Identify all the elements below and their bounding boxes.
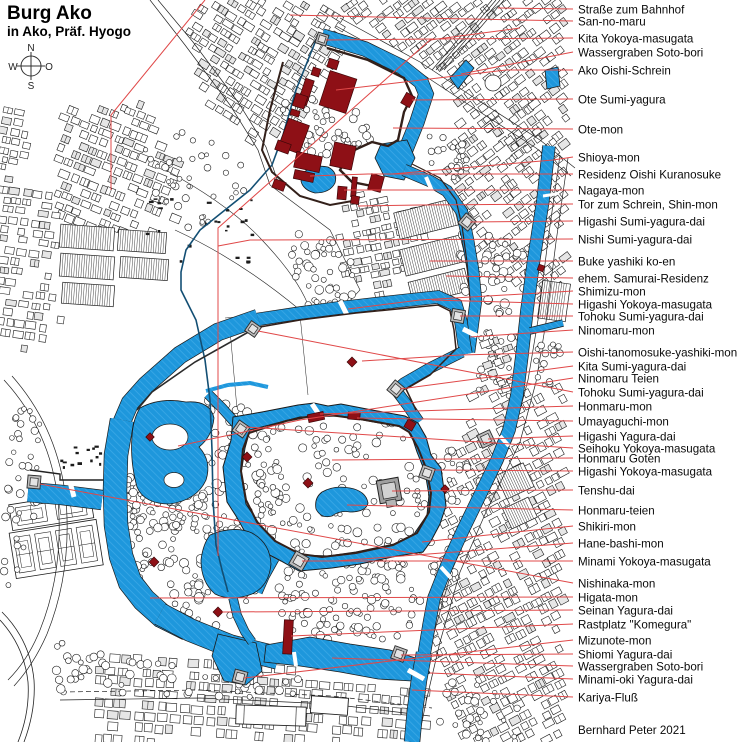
svg-text:Ninomaru-mon: Ninomaru-mon: [578, 325, 655, 338]
svg-text:O: O: [45, 62, 53, 73]
svg-text:Tenshu-dai: Tenshu-dai: [578, 485, 635, 498]
svg-text:Kita Yokoya-masugata: Kita Yokoya-masugata: [578, 33, 694, 46]
svg-text:Umayaguchi-mon: Umayaguchi-mon: [578, 416, 669, 429]
svg-text:Minami Yokoya-masugata: Minami Yokoya-masugata: [578, 556, 711, 569]
svg-text:Kariya-Fluß: Kariya-Fluß: [578, 692, 638, 705]
svg-text:Ote Sumi-yagura: Ote Sumi-yagura: [578, 94, 666, 107]
svg-text:Residenz Oishi Kuranosuke: Residenz Oishi Kuranosuke: [578, 169, 721, 182]
svg-text:Nishi Sumi-yagura-dai: Nishi Sumi-yagura-dai: [578, 234, 692, 247]
svg-text:Oishi-tanomosuke-yashiki-mon: Oishi-tanomosuke-yashiki-mon: [578, 347, 737, 360]
svg-text:in Ako, Präf. Hyogo: in Ako, Präf. Hyogo: [7, 24, 131, 39]
svg-text:Higashi Yokoya-masugata: Higashi Yokoya-masugata: [578, 466, 713, 479]
svg-text:Buke yashiki ko-en: Buke yashiki ko-en: [578, 256, 675, 269]
svg-text:W: W: [8, 62, 18, 73]
svg-text:Higashi Sumi-yagura-dai: Higashi Sumi-yagura-dai: [578, 216, 705, 229]
svg-text:Honmaru Goten: Honmaru Goten: [578, 453, 661, 466]
svg-text:Nishinaka-mon: Nishinaka-mon: [578, 578, 655, 591]
svg-text:Ninomaru Teien: Ninomaru Teien: [578, 373, 659, 386]
svg-text:ehem. Samurai-Residenz: ehem. Samurai-Residenz: [578, 273, 709, 286]
svg-text:Tohoku Sumi-yagura-dai: Tohoku Sumi-yagura-dai: [578, 311, 704, 324]
svg-text:S: S: [28, 81, 35, 92]
svg-text:N: N: [27, 43, 34, 54]
svg-text:Rastplatz "Komegura": Rastplatz "Komegura": [578, 619, 691, 632]
svg-text:Nagaya-mon: Nagaya-mon: [578, 185, 644, 198]
svg-text:Mizunote-mon: Mizunote-mon: [578, 635, 651, 648]
svg-text:Wassergraben Soto-bori: Wassergraben Soto-bori: [578, 661, 703, 674]
svg-text:Ako Oishi-Schrein: Ako Oishi-Schrein: [578, 65, 671, 78]
svg-text:Ote-mon: Ote-mon: [578, 124, 623, 137]
svg-text:San-no-maru: San-no-maru: [578, 16, 646, 29]
svg-text:Burg Ako: Burg Ako: [7, 3, 92, 24]
svg-text:Higata-mon: Higata-mon: [578, 592, 638, 605]
svg-text:Shikiri-mon: Shikiri-mon: [578, 521, 636, 534]
svg-text:Tohoku Sumi-yagura-dai: Tohoku Sumi-yagura-dai: [578, 387, 704, 400]
svg-text:Seinan Yagura-dai: Seinan Yagura-dai: [578, 605, 673, 618]
svg-text:Shioya-mon: Shioya-mon: [578, 152, 640, 165]
svg-text:Tor zum Schrein, Shin-mon: Tor zum Schrein, Shin-mon: [578, 199, 718, 212]
svg-text:Bernhard Peter 2021: Bernhard Peter 2021: [578, 724, 686, 737]
svg-text:Shimizu-mon: Shimizu-mon: [578, 286, 646, 299]
svg-text:Honmaru-teien: Honmaru-teien: [578, 505, 655, 518]
svg-text:Minami-oki Yagura-dai: Minami-oki Yagura-dai: [578, 674, 693, 687]
svg-text:Hane-bashi-mon: Hane-bashi-mon: [578, 538, 664, 551]
svg-text:Wassergraben Soto-bori: Wassergraben Soto-bori: [578, 47, 703, 60]
svg-text:Honmaru-mon: Honmaru-mon: [578, 401, 652, 414]
